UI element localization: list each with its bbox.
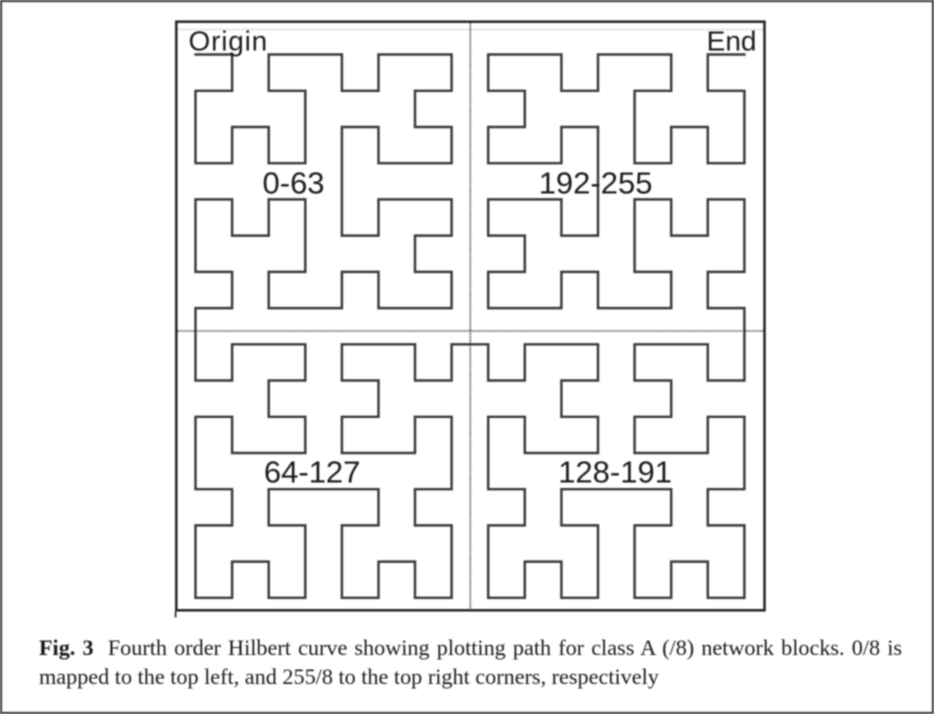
svg-text:64-127: 64-127 (264, 455, 361, 490)
svg-text:Origin: Origin (189, 25, 269, 56)
svg-text:128-191: 128-191 (558, 455, 672, 490)
svg-text:192-255: 192-255 (539, 165, 653, 200)
svg-text:End: End (707, 25, 757, 56)
svg-text:0-63: 0-63 (263, 165, 325, 200)
